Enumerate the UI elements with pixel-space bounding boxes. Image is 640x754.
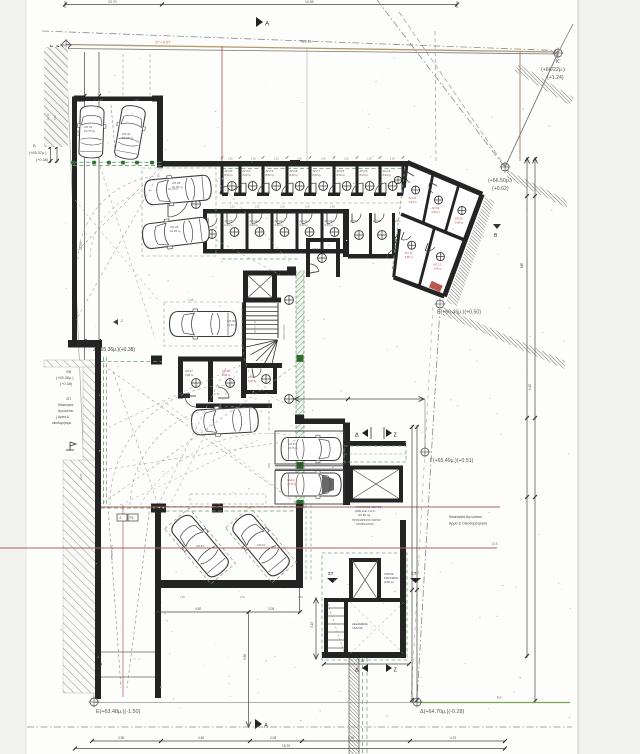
svg-text:2.30: 2.30: [76, 130, 80, 136]
svg-text:2.50: 2.50: [240, 596, 245, 599]
svg-text:10,75 τμ: 10,75 τμ: [122, 136, 134, 140]
svg-text:(+0.38): (+0.38): [60, 382, 73, 386]
svg-text:(+66/22μ.): (+66/22μ.): [541, 67, 565, 73]
svg-text:2.50: 2.50: [332, 465, 335, 470]
svg-text:ΑΠ.16: ΑΠ.16: [337, 169, 345, 173]
svg-text:Β: Β: [33, 143, 36, 148]
svg-text:ΑΠ.26: ΑΠ.26: [325, 219, 333, 223]
svg-text:ΘΕΣΗ: ΘΕΣΗ: [287, 478, 295, 482]
svg-text:ΑΠ.26: ΑΠ.26: [222, 369, 230, 373]
svg-text:ΑΠ.09: ΑΠ.09: [432, 206, 440, 210]
svg-text:-2: -2: [120, 319, 123, 323]
svg-text:8,00 τμ: 8,00 τμ: [337, 173, 346, 177]
svg-text:ΑΠ.11: ΑΠ.11: [405, 251, 413, 255]
svg-text:ΑΠ.14: ΑΠ.14: [383, 169, 391, 173]
svg-text:ΑΠ.17: ΑΠ.17: [313, 169, 321, 173]
svg-text:6,90 τμ: 6,90 τμ: [325, 223, 334, 227]
svg-text:ΑΠ.24: ΑΠ.24: [250, 219, 258, 223]
svg-text:12.10: 12.10: [46, 113, 50, 120]
svg-text:ΑΠ.21: ΑΠ.21: [243, 169, 251, 173]
svg-text:5,00 τμ: 5,00 τμ: [248, 379, 257, 383]
svg-text:5,98 τμ: 5,98 τμ: [409, 200, 418, 204]
svg-text:A: A: [264, 724, 268, 730]
svg-text:Ο.Γ.: Ο.Γ.: [492, 542, 499, 546]
svg-text:8,00 τμ: 8,00 τμ: [383, 173, 392, 177]
svg-text:Δ: Δ: [355, 433, 359, 439]
svg-text:10.55: 10.55: [305, 0, 314, 4]
svg-text:ΚΑΥΣΙΜΩΝ: ΚΑΥΣΙΜΩΝ: [384, 576, 398, 580]
svg-text:8,00 τμ: 8,00 τμ: [290, 173, 299, 177]
svg-text:10,75 τμ: 10,75 τμ: [84, 129, 96, 133]
svg-text:16Ρ 17,5/28: 16Ρ 17,5/28: [254, 320, 257, 334]
svg-text:Αρμα & Οικοδομήτρηση: Αρμα & Οικοδομήτρηση: [449, 522, 487, 526]
svg-text:0.30: 0.30: [298, 596, 303, 599]
svg-text:27 + 0.07: 27 + 0.07: [155, 41, 170, 45]
svg-text:ΑΠ.07: ΑΠ.07: [312, 247, 320, 251]
svg-text:(34,80 τμ): (34,80 τμ): [358, 513, 370, 517]
svg-text:8,00 τμ: 8,00 τμ: [313, 173, 322, 177]
svg-text:5.00: 5.00: [268, 463, 271, 468]
svg-text:6,90 τμ: 6,90 τμ: [275, 223, 284, 227]
svg-text:ΑΠ.25: ΑΠ.25: [225, 219, 233, 223]
svg-text:ΑΠΟΒΛΗΤΩΝ: ΑΠΟΒΛΗΤΩΝ: [356, 522, 374, 526]
svg-text:(+0.62): (+0.62): [492, 186, 509, 192]
svg-text:6,90 τμ: 6,90 τμ: [300, 223, 309, 227]
svg-text:18.25: 18.25: [282, 744, 290, 748]
svg-text:ΤΔ/9.81: ΤΔ/9.81: [300, 40, 312, 44]
svg-text:Αγνώστου: Αγνώστου: [58, 409, 74, 413]
svg-text:4.70: 4.70: [450, 736, 456, 740]
svg-text:Ιδιοκτησία: Ιδιοκτησία: [58, 403, 73, 407]
svg-text:2.30: 2.30: [274, 158, 279, 161]
svg-text:2.05: 2.05: [270, 736, 276, 740]
svg-text:1Π: 1Π: [66, 397, 71, 401]
svg-text:2.30: 2.30: [228, 158, 233, 161]
svg-text:2.50: 2.50: [180, 596, 185, 599]
svg-text:ΑΠ.22: ΑΠ.22: [300, 219, 308, 223]
svg-text:Ρ.Γ.: Ρ.Γ.: [497, 696, 503, 700]
svg-text:9,98 τμ: 9,98 τμ: [185, 373, 194, 377]
svg-text:8,00 τμ: 8,00 τμ: [243, 173, 252, 177]
svg-text:6,90 τμ: 6,90 τμ: [250, 223, 259, 227]
svg-text:1.10: 1.10: [528, 384, 532, 390]
svg-text:2.30: 2.30: [297, 158, 302, 161]
svg-text:5,98 τμ: 5,98 τμ: [432, 210, 441, 214]
svg-text:10,75 τμ: 10,75 τμ: [287, 482, 297, 486]
svg-text:ΑΠ.05: ΑΠ.05: [373, 219, 381, 223]
svg-text:ΘΒ: ΘΒ: [66, 370, 72, 374]
svg-text:-2: -2: [119, 516, 122, 520]
svg-text:ΔΙΑΔΡΟΜΟΣ: ΔΙΑΔΡΟΜΟΣ: [282, 324, 286, 340]
svg-text:ΑΠ.27: ΑΠ.27: [185, 369, 193, 373]
svg-text:ΡΑΜΠΑ 18%: ΡΑΜΠΑ 18%: [110, 545, 114, 560]
svg-text:4.50: 4.50: [195, 607, 201, 611]
svg-text:10,35 τμ: 10,35 τμ: [170, 229, 181, 233]
svg-text:5,98 τμ: 5,98 τμ: [433, 267, 442, 271]
svg-text:ΕΙΣΟΔΟΣ: ΕΙΣΟΔΟΣ: [168, 188, 179, 191]
svg-text:E(+63.48μ.)(-1.50): E(+63.48μ.)(-1.50): [96, 709, 141, 715]
svg-text:ΑΠ.33: ΑΠ.33: [196, 544, 204, 548]
svg-text:5.80: 5.80: [243, 654, 247, 660]
svg-text:5.35: 5.35: [348, 736, 354, 740]
svg-text:3.45: 3.45: [54, 115, 57, 120]
svg-text:7.05: 7.05: [188, 298, 194, 302]
svg-text:2.20: 2.20: [305, 206, 310, 209]
svg-text:2.05: 2.05: [268, 607, 274, 611]
svg-text:8,00 τμ: 8,00 τμ: [266, 173, 275, 177]
svg-text:ΑΠ.23: ΑΠ.23: [275, 219, 283, 223]
svg-text:2.20: 2.20: [255, 206, 260, 209]
svg-text:ΑΠ.04: ΑΠ.04: [350, 219, 358, 223]
svg-text:(+0.38): (+0.38): [36, 158, 49, 162]
svg-text:( Αρπα &: ( Αρπα &: [56, 415, 70, 419]
svg-text:Δ(+64.70μ.)(-0.28): Δ(+64.70μ.)(-0.28): [420, 709, 465, 715]
svg-text:4.25: 4.25: [358, 659, 364, 663]
svg-text:Ρ2: Ρ2: [130, 516, 134, 520]
svg-text:(+65.37μ.): (+65.37μ.): [29, 151, 47, 155]
svg-text:5,98 τμ: 5,98 τμ: [405, 255, 414, 259]
svg-text:2.20: 2.20: [230, 206, 235, 209]
svg-text:4.70: 4.70: [214, 392, 220, 396]
svg-text:Ιδιοκτησία Αγνώστου: Ιδιοκτησία Αγνώστου: [449, 515, 482, 519]
svg-text:Δ: Δ: [355, 668, 359, 674]
svg-text:4.50: 4.50: [198, 736, 204, 740]
svg-text:3.15: 3.15: [310, 622, 314, 628]
svg-text:K': K': [556, 59, 560, 65]
svg-text:2.20: 2.20: [280, 206, 285, 209]
svg-text:ΑΠ.20: ΑΠ.20: [225, 169, 233, 173]
svg-text:A: A: [265, 21, 270, 28]
svg-text:2.30: 2.30: [321, 158, 326, 161]
svg-text:ΑΠ.31: ΑΠ.31: [288, 442, 296, 446]
svg-text:(+1.24): (+1.24): [547, 75, 564, 81]
svg-text:ΜΕ: ΜΕ: [520, 262, 524, 268]
svg-text:6,90 τμ: 6,90 τμ: [225, 223, 234, 227]
svg-text:2.30: 2.30: [251, 158, 256, 161]
svg-text:(+66.50μ.): (+66.50μ.): [488, 178, 512, 184]
svg-text:ΥΔΑΤΟΣ: ΥΔΑΤΟΣ: [352, 626, 363, 630]
svg-text:οικοδομήσιμο: οικοδομήσιμο: [52, 421, 71, 425]
svg-text:ΣΤ: ΣΤ: [328, 571, 334, 576]
svg-text:ΑΠ.34: ΑΠ.34: [257, 543, 265, 547]
svg-text:ΑΠ.08: ΑΠ.08: [455, 217, 463, 221]
svg-text:8,00 τμ: 8,00 τμ: [360, 173, 369, 177]
svg-text:2.20: 2.20: [330, 206, 335, 209]
svg-text:2.50: 2.50: [134, 99, 139, 102]
svg-text:10,75 τμ: 10,75 τμ: [288, 446, 298, 450]
svg-text:8,00 τμ: 8,00 τμ: [225, 173, 234, 177]
svg-text:15.35: 15.35: [79, 473, 83, 480]
svg-text:2.30: 2.30: [367, 158, 372, 161]
svg-text:23.70: 23.70: [108, 0, 117, 4]
svg-text:5,98 τμ: 5,98 τμ: [455, 221, 464, 225]
svg-text:(+65.36μ.): (+65.36μ.): [56, 376, 74, 380]
svg-text:ΑΠ.19: ΑΠ.19: [266, 169, 274, 173]
svg-text:(9,80 τμ): (9,80 τμ): [384, 580, 394, 584]
svg-text:ΑΠ.12: ΑΠ.12: [433, 263, 441, 267]
svg-text:2.30: 2.30: [390, 158, 395, 161]
svg-text:2.30: 2.30: [344, 158, 349, 161]
svg-text:ΑΠ.10: ΑΠ.10: [409, 196, 417, 200]
svg-text:11,35 τμ: 11,35 τμ: [227, 323, 238, 327]
svg-text:ΑΠ.15: ΑΠ.15: [360, 169, 368, 173]
svg-text:Γ(+65.49μ.)(+0.51): Γ(+65.49μ.)(+0.51): [430, 458, 474, 464]
svg-text:2.50: 2.50: [98, 99, 103, 102]
svg-text:ΑΠ.18: ΑΠ.18: [290, 169, 298, 173]
svg-text:3.95: 3.95: [118, 736, 124, 740]
